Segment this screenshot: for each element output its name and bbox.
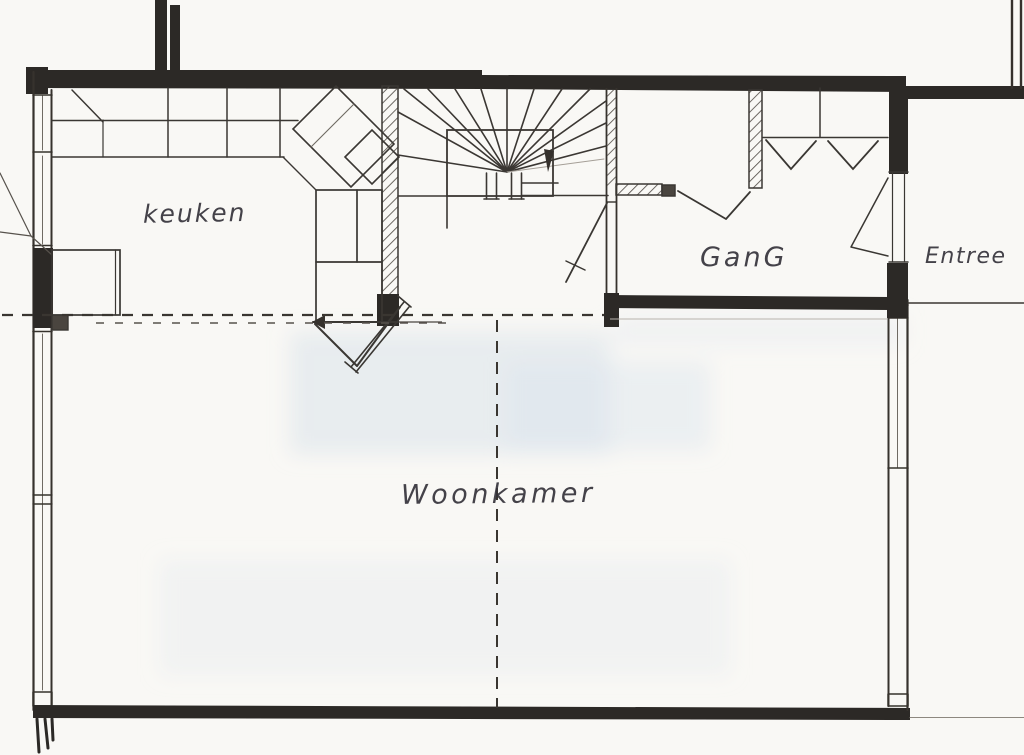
entree-top-wall: [893, 86, 1024, 99]
closet-right-wall-hatched: [749, 90, 762, 188]
stair-wall-left-hatched: [382, 86, 398, 322]
closet-bottom-wall-hatched: [616, 184, 662, 195]
wall-stub-top-left-2: [170, 5, 180, 80]
room-label-woonkamer: Woonkamer: [401, 478, 596, 511]
closet-door-post: [662, 185, 675, 196]
floorplan-canvas: keuken GanG Entree Woonkamer: [0, 0, 1024, 755]
gang-bottom-wall: [608, 295, 893, 310]
gang-entree-wall: [889, 86, 908, 174]
room-label-gang: GanG: [700, 242, 788, 273]
room-label-keuken: keuken: [143, 198, 247, 229]
stair-wall-right-hatch: [607, 90, 616, 186]
top-left-corner-block: [26, 67, 48, 94]
room-label-entree: Entree: [925, 244, 1007, 269]
floorplan-sketch: keuken GanG Entree Woonkamer: [0, 0, 1024, 755]
wall-stub-top-left: [155, 0, 167, 80]
